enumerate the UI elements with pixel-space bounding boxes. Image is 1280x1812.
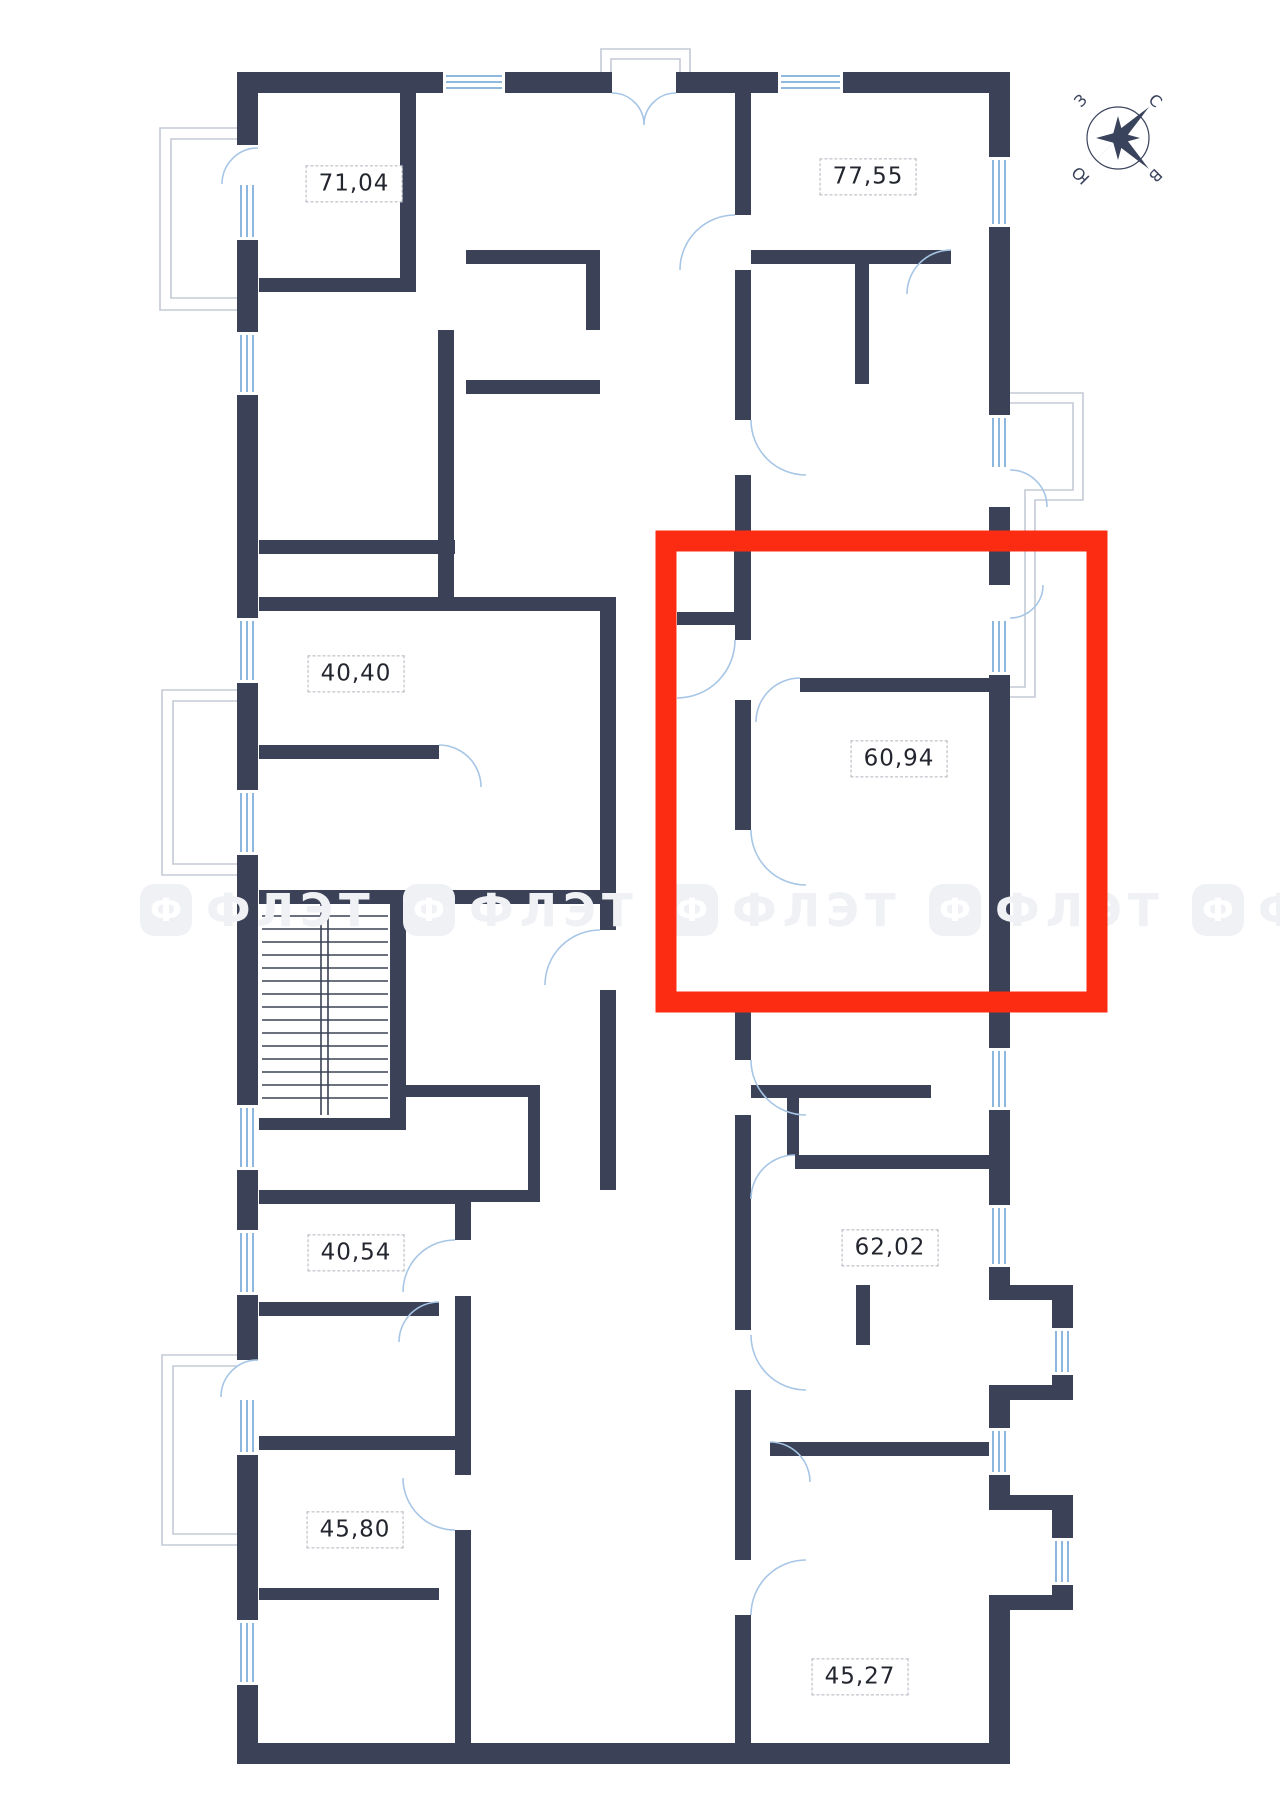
door-arcs	[221, 93, 1047, 1615]
balcony-top-left	[160, 128, 238, 310]
watermark-brand: ФЛЭТ	[732, 884, 902, 937]
compass-rose: С З Ю В	[1068, 90, 1166, 188]
watermark-brand: ФЛЭТ	[995, 884, 1165, 937]
floor-plan-drawing: Ф ФЛЭТ Ф ФЛЭТ Ф ФЛЭТ Ф ФЛЭТ Ф ФЛЭТ	[0, 0, 1280, 1812]
area-label-40-54: 40,54	[308, 1234, 405, 1271]
floor-plan-page: Ф ФЛЭТ Ф ФЛЭТ Ф ФЛЭТ Ф ФЛЭТ Ф ФЛЭТ	[0, 0, 1280, 1812]
area-label-45-80: 45,80	[307, 1511, 404, 1548]
watermark-logo-letter: Ф	[413, 891, 445, 929]
watermark-logo-letter: Ф	[676, 891, 708, 929]
area-label-40-40: 40,40	[308, 655, 405, 692]
watermark-brand: ФЛЭТ	[469, 884, 639, 937]
watermarks: Ф ФЛЭТ Ф ФЛЭТ Ф ФЛЭТ Ф ФЛЭТ Ф ФЛЭТ	[140, 884, 1280, 937]
watermark-brand: ФЛЭТ	[206, 884, 376, 937]
compass-south-label: Ю	[1068, 163, 1094, 189]
watermark-logo-letter: Ф	[150, 891, 182, 929]
watermark-item: Ф ФЛЭТ	[929, 884, 1165, 937]
watermark-item: Ф ФЛЭТ	[403, 884, 639, 937]
area-label-62-02: 62,02	[842, 1229, 939, 1266]
watermark-item: Ф ФЛЭТ	[666, 884, 902, 937]
area-label-60-94-highlighted[interactable]: 60,94	[851, 740, 948, 777]
entrance-door-arc	[612, 93, 676, 125]
balcony-outlines	[160, 49, 1083, 1545]
area-label-71-04: 71,04	[306, 165, 403, 202]
watermark-logo-letter: Ф	[1202, 891, 1234, 929]
area-label-77-55: 77,55	[820, 158, 917, 195]
area-label-45-27: 45,27	[812, 1658, 909, 1695]
watermark-item: Ф ФЛЭТ	[1192, 884, 1280, 937]
balcony-bottom-left	[162, 1355, 237, 1545]
watermark-item: Ф ФЛЭТ	[140, 884, 376, 937]
compass-west-label: З	[1070, 90, 1091, 111]
balcony-mid-left	[162, 690, 237, 875]
watermark-logo-letter: Ф	[939, 891, 971, 929]
watermark-brand: ФЛЭТ	[1258, 884, 1280, 937]
